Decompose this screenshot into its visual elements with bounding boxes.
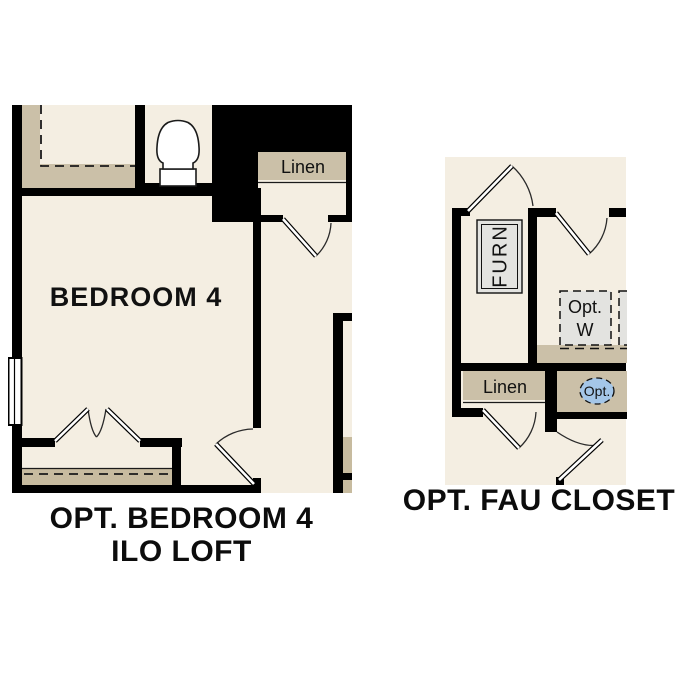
optional-callout-label: Opt. (584, 383, 610, 399)
linen-label: Linen (281, 157, 325, 177)
plan-opt-fau-closet: Opt. FURN Opt. W Linen (443, 155, 627, 487)
optional-washer-label-line2: W (577, 320, 594, 340)
furnace-label: FURN (490, 224, 512, 288)
right-plan-caption-text: OPT. FAU CLOSET (389, 484, 687, 517)
optional-callout: Opt. (580, 378, 614, 404)
left-plan-caption: OPT. BEDROOM 4 ILO LOFT (8, 502, 355, 568)
right-plan-caption: OPT. FAU CLOSET (389, 484, 687, 517)
linen-label: Linen (483, 377, 527, 397)
left-plan-caption-line1: OPT. BEDROOM 4 (8, 502, 355, 535)
plan-opt-bedroom4: BEDROOM 4 Linen (8, 104, 355, 494)
left-plan-caption-line2: ILO LOFT (8, 535, 355, 568)
bedroom-label: BEDROOM 4 (50, 282, 223, 312)
floorplan-sheet: BEDROOM 4 Linen (0, 0, 687, 687)
optional-washer-label-line1: Opt. (568, 297, 602, 317)
window-symbol (9, 358, 22, 425)
toilet-icon (157, 121, 199, 187)
